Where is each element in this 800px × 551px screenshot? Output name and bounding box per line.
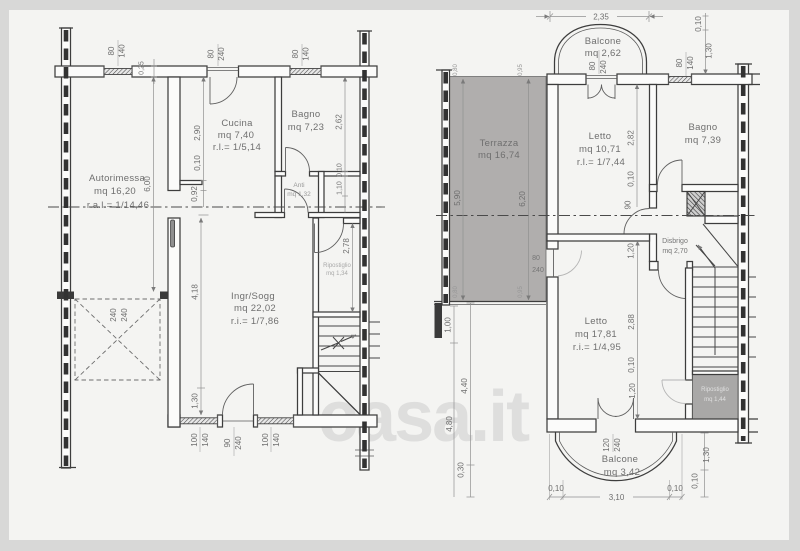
svg-text:140: 140 [302,47,311,61]
svg-text:0,10: 0,10 [627,171,636,187]
svg-text:0,10: 0,10 [193,155,202,171]
svg-text:140: 140 [201,433,210,447]
svg-text:0,10: 0,10 [627,357,636,373]
svg-text:0,80: 0,80 [453,286,459,298]
svg-text:Anti: Anti [293,182,304,189]
svg-text:4,80: 4,80 [445,416,454,432]
svg-text:0,80: 0,80 [453,64,459,76]
svg-text:120: 120 [602,438,611,452]
svg-text:mq 1,44: mq 1,44 [704,397,726,403]
svg-text:Ripostiglio: Ripostiglio [323,263,351,269]
svg-text:240: 240 [599,60,608,74]
svg-text:2,90: 2,90 [193,125,202,141]
svg-text:r.i.= 1/7,86: r.i.= 1/7,86 [231,316,279,327]
svg-text:240: 240 [234,436,243,450]
svg-text:1,30: 1,30 [705,43,714,59]
svg-text:240: 240 [217,47,226,61]
svg-text:2,35: 2,35 [593,13,609,22]
svg-text:mq 16,20: mq 16,20 [94,186,136,197]
svg-text:80: 80 [207,49,216,58]
svg-text:1,20: 1,20 [628,383,637,399]
svg-text:100: 100 [261,433,270,447]
svg-text:0,10: 0,10 [337,163,344,177]
svg-text:80: 80 [675,58,684,67]
svg-text:1,00: 1,00 [444,317,453,333]
svg-text:80: 80 [588,61,597,70]
svg-text:0,10: 0,10 [667,484,683,493]
svg-text:1,10: 1,10 [337,181,344,195]
svg-text:2,88: 2,88 [627,314,636,330]
svg-text:0,10: 0,10 [548,484,564,493]
svg-text:mq 7,39: mq 7,39 [685,135,721,146]
svg-text:80: 80 [107,46,116,55]
svg-text:mq 2,70: mq 2,70 [662,248,687,255]
svg-text:4,40: 4,40 [460,378,469,394]
svg-text:3,10: 3,10 [609,493,625,502]
svg-text:r.a.l.= 1/14,46: r.a.l.= 1/14,46 [87,200,149,211]
svg-text:1,30: 1,30 [191,393,200,409]
svg-text:r.l.= 1/5,14: r.l.= 1/5,14 [213,142,261,153]
svg-text:140: 140 [686,56,695,70]
svg-text:90: 90 [624,200,633,209]
svg-text:100: 100 [190,433,199,447]
svg-text:mq 7,23: mq 7,23 [288,122,324,133]
svg-text:2,82: 2,82 [627,130,636,146]
svg-text:mq 22,02: mq 22,02 [234,303,276,314]
svg-text:mq 2,62: mq 2,62 [585,48,621,59]
svg-text:0,95: 0,95 [518,64,524,76]
svg-text:240: 240 [109,308,118,322]
svg-text:mq 7,40: mq 7,40 [218,130,254,141]
svg-text:mq 1,32: mq 1,32 [287,191,311,198]
svg-text:mq 17,81: mq 17,81 [575,329,617,340]
svg-text:Balcone: Balcone [602,454,638,465]
svg-text:0,30: 0,30 [457,462,466,478]
svg-text:90: 90 [223,438,232,447]
svg-text:0,10: 0,10 [694,16,703,32]
svg-text:0,92: 0,92 [190,186,199,202]
svg-text:0,95: 0,95 [518,286,524,298]
svg-text:Ripostiglio: Ripostiglio [701,387,729,393]
svg-text:240: 240 [120,308,129,322]
svg-text:Letto: Letto [585,316,608,327]
svg-text:80: 80 [291,49,300,58]
svg-text:Balcone: Balcone [585,36,621,47]
svg-text:0,25: 0,25 [139,61,146,75]
svg-text:mq 10,71: mq 10,71 [579,144,621,155]
svg-text:1,30: 1,30 [702,447,711,463]
svg-text:Bagno: Bagno [689,122,718,133]
svg-text:Disbrigo: Disbrigo [662,238,688,245]
svg-text:Ingr/Sogg: Ingr/Sogg [231,291,275,302]
svg-text:1,20: 1,20 [627,243,636,259]
svg-text:140: 140 [272,433,281,447]
svg-text:0,10: 0,10 [691,473,700,489]
svg-text:r.l.= 1/7,44: r.l.= 1/7,44 [577,157,625,168]
svg-text:6,20: 6,20 [518,191,527,207]
svg-text:140: 140 [118,44,127,58]
svg-text:2,62: 2,62 [335,114,344,130]
svg-text:4,18: 4,18 [191,284,200,300]
svg-text:mq 16,74: mq 16,74 [478,150,520,161]
svg-text:Cucina: Cucina [221,118,253,129]
svg-text:6,00: 6,00 [143,176,152,192]
svg-text:80: 80 [532,255,540,262]
svg-text:mq 1,34: mq 1,34 [326,271,348,277]
svg-text:mq 3,42: mq 3,42 [604,467,640,478]
svg-text:2,78: 2,78 [342,238,351,254]
svg-text:r.i.= 1/4,95: r.i.= 1/4,95 [573,342,621,353]
svg-text:240: 240 [532,267,544,274]
svg-text:5,90: 5,90 [453,190,462,206]
svg-text:Terrazza: Terrazza [480,138,519,149]
svg-text:240: 240 [613,438,622,452]
svg-text:Bagno: Bagno [292,109,321,120]
svg-text:Autorimessa: Autorimessa [89,173,146,184]
svg-text:Letto: Letto [589,131,612,142]
